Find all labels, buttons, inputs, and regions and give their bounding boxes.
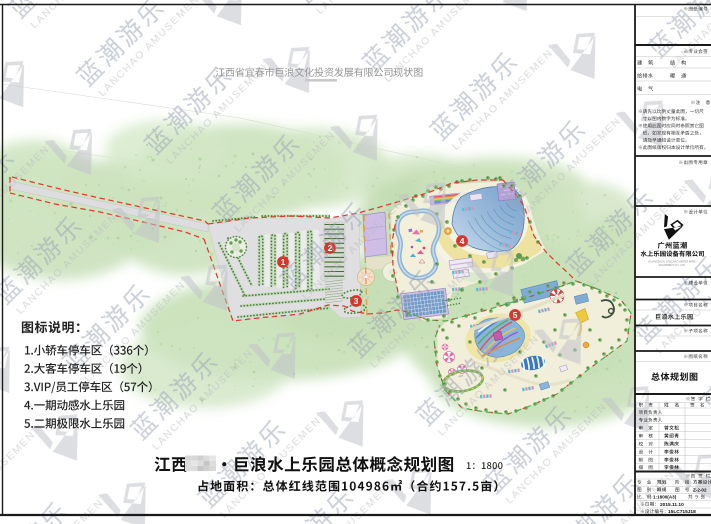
svg-text:GUANGZHOU LANCHAO WATER PARK: GUANGZHOU LANCHAO WATER PARK — [648, 260, 696, 264]
svg-text:2015.11.10: 2015.11.10 — [660, 502, 684, 508]
svg-text:Z-2-02: Z-2-02 — [693, 487, 707, 492]
svg-text:15LC715J18: 15LC715J18 — [668, 509, 696, 515]
svg-text:1:1800(A3): 1:1800(A3) — [653, 494, 677, 499]
svg-text:EQUIPMENT CO.,LTD.: EQUIPMENT CO.,LTD. — [659, 263, 686, 267]
